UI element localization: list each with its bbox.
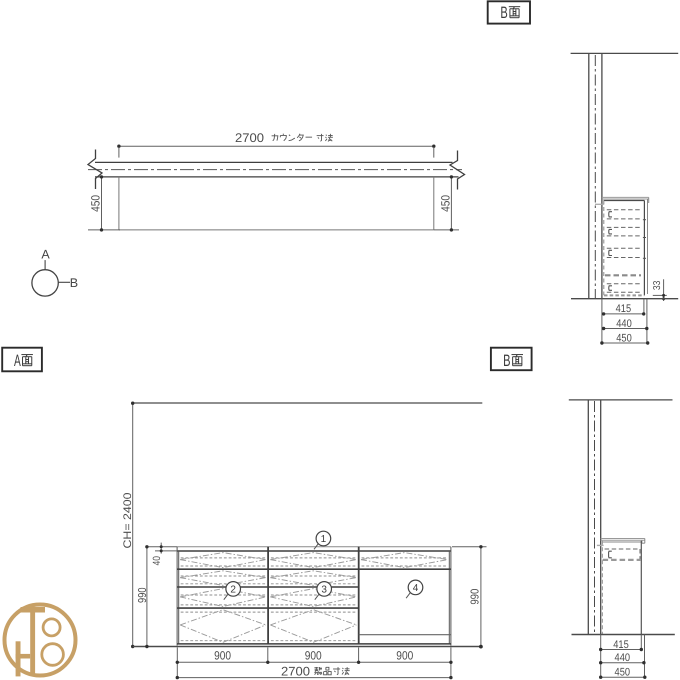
svg-text:40: 40 <box>151 556 163 566</box>
svg-text:450: 450 <box>438 195 452 212</box>
svg-text:450: 450 <box>89 195 103 212</box>
svg-text:B: B <box>503 352 510 370</box>
svg-text:440: 440 <box>615 652 631 664</box>
svg-text:4: 4 <box>413 583 419 594</box>
svg-text:440: 440 <box>616 318 632 330</box>
svg-text:415: 415 <box>616 303 632 315</box>
svg-text:900: 900 <box>396 649 413 663</box>
svg-text:33: 33 <box>652 280 663 290</box>
svg-text:900: 900 <box>305 649 322 663</box>
svg-text:900: 900 <box>214 649 231 663</box>
svg-text:B: B <box>70 276 78 290</box>
svg-text:450: 450 <box>616 332 632 344</box>
svg-text:A: A <box>41 248 50 262</box>
svg-text:1: 1 <box>321 534 327 545</box>
svg-text:3: 3 <box>321 585 327 596</box>
svg-text:B: B <box>500 4 507 22</box>
svg-text:990: 990 <box>137 587 149 603</box>
svg-text:450: 450 <box>615 667 631 679</box>
svg-text:990: 990 <box>469 589 481 605</box>
svg-text:415: 415 <box>613 639 629 651</box>
svg-text:CH= 2400: CH= 2400 <box>122 493 134 549</box>
svg-text:2700: 2700 <box>235 131 264 145</box>
svg-text:A: A <box>14 352 21 370</box>
svg-text:2: 2 <box>230 585 236 596</box>
svg-text:2700: 2700 <box>281 664 310 678</box>
